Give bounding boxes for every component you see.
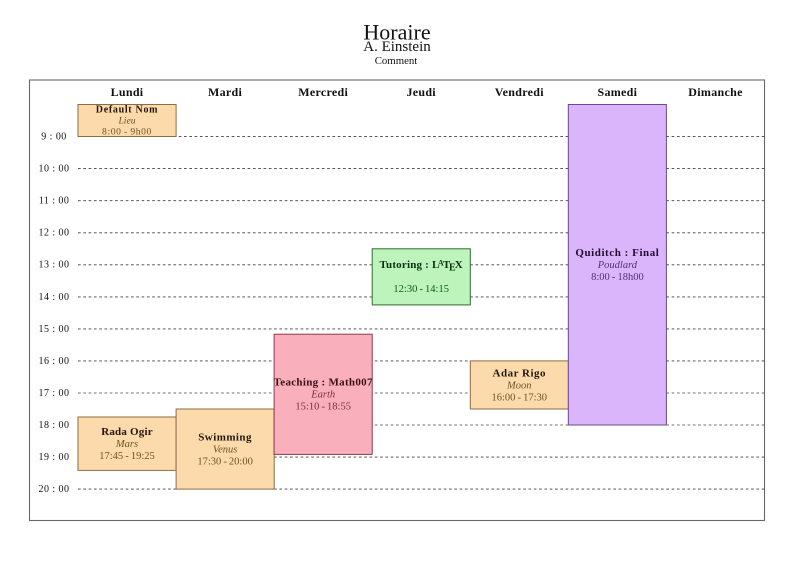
svg-text:13 : 00: 13 : 00 xyxy=(39,260,70,271)
svg-text:18 : 00: 18 : 00 xyxy=(39,420,70,431)
svg-text:Poudlard: Poudlard xyxy=(597,260,638,271)
svg-text:12:30 - 14:15: 12:30 - 14:15 xyxy=(393,284,449,295)
svg-text:Mardi: Mardi xyxy=(208,85,243,99)
svg-text:Lieu: Lieu xyxy=(117,116,135,127)
svg-text:Quiditch : Final: Quiditch : Final xyxy=(575,247,659,259)
svg-text:20 : 00: 20 : 00 xyxy=(39,484,70,495)
svg-text:Mars: Mars xyxy=(115,439,138,450)
svg-text:16:00 - 17:30: 16:00 - 17:30 xyxy=(492,392,548,403)
svg-text:17 : 00: 17 : 00 xyxy=(39,388,70,399)
svg-text:Earth: Earth xyxy=(310,390,335,401)
svg-text:Samedi: Samedi xyxy=(597,85,637,99)
svg-text:A. Einstein: A. Einstein xyxy=(363,39,431,55)
svg-text:Adar Rigo: Adar Rigo xyxy=(493,367,547,379)
svg-text:17:45 - 19:25: 17:45 - 19:25 xyxy=(99,451,155,462)
svg-text:9 : 00: 9 : 00 xyxy=(41,132,66,143)
svg-text:Moon: Moon xyxy=(506,380,532,391)
svg-text:Dimanche: Dimanche xyxy=(688,85,743,99)
svg-text:Lundi: Lundi xyxy=(111,85,144,99)
svg-text:8:00 - 18h00: 8:00 - 18h00 xyxy=(591,272,644,283)
svg-text:15 : 00: 15 : 00 xyxy=(39,324,70,335)
svg-text:Comment: Comment xyxy=(375,55,418,67)
svg-text:Default Nom: Default Nom xyxy=(96,105,158,116)
svg-text:10 : 00: 10 : 00 xyxy=(39,164,70,175)
svg-text:16 : 00: 16 : 00 xyxy=(39,356,70,367)
svg-text:15:10 - 18:55: 15:10 - 18:55 xyxy=(295,402,351,413)
svg-text:Teaching : Math007: Teaching : Math007 xyxy=(274,377,373,389)
svg-text:14 : 00: 14 : 00 xyxy=(39,292,70,303)
svg-text:Mercredi: Mercredi xyxy=(298,85,348,99)
svg-text:17:30 - 20:00: 17:30 - 20:00 xyxy=(197,457,253,468)
svg-text:Jeudi: Jeudi xyxy=(406,85,436,99)
svg-text:11 : 00: 11 : 00 xyxy=(39,196,70,207)
svg-text:Venus: Venus xyxy=(213,445,238,456)
svg-text:Vendredi: Vendredi xyxy=(495,85,544,99)
svg-text:8:00 - 9h00: 8:00 - 9h00 xyxy=(102,126,152,137)
svg-text:19 : 00: 19 : 00 xyxy=(39,452,70,463)
svg-text:12 : 00: 12 : 00 xyxy=(39,228,70,239)
svg-text:Swimming: Swimming xyxy=(198,432,252,444)
svg-text:Rada Ogir: Rada Ogir xyxy=(101,426,153,438)
